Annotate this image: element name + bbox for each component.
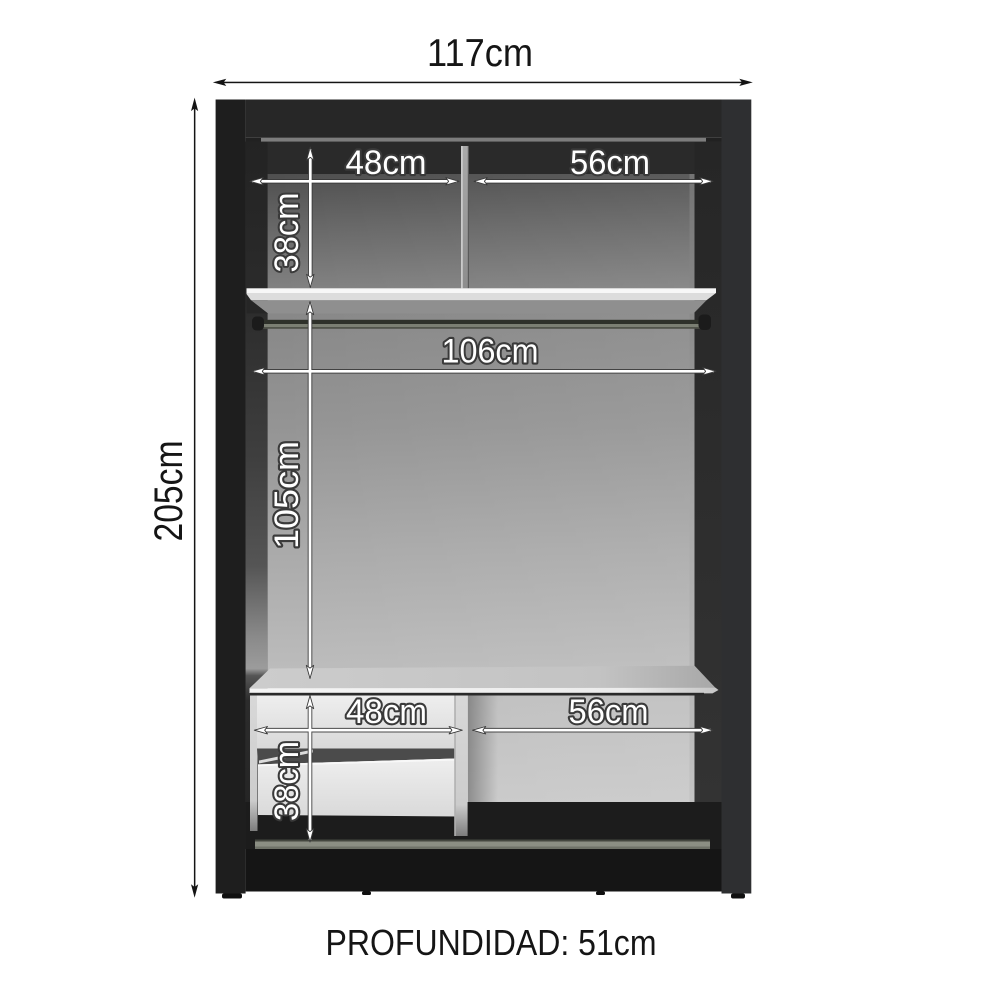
svg-text:56cm: 56cm <box>570 144 650 182</box>
svg-text:PROFUNDIDAD: 51cm: PROFUNDIDAD: 51cm <box>326 922 657 963</box>
svg-text:38cm: 38cm <box>268 741 306 821</box>
svg-text:205cm: 205cm <box>147 441 191 542</box>
svg-text:106cm: 106cm <box>442 333 539 371</box>
svg-text:38cm: 38cm <box>268 193 306 273</box>
svg-text:48cm: 48cm <box>346 144 427 182</box>
svg-text:117cm: 117cm <box>427 32 533 75</box>
svg-text:56cm: 56cm <box>569 693 649 731</box>
svg-text:48cm: 48cm <box>346 693 427 731</box>
svg-text:105cm: 105cm <box>268 441 306 549</box>
